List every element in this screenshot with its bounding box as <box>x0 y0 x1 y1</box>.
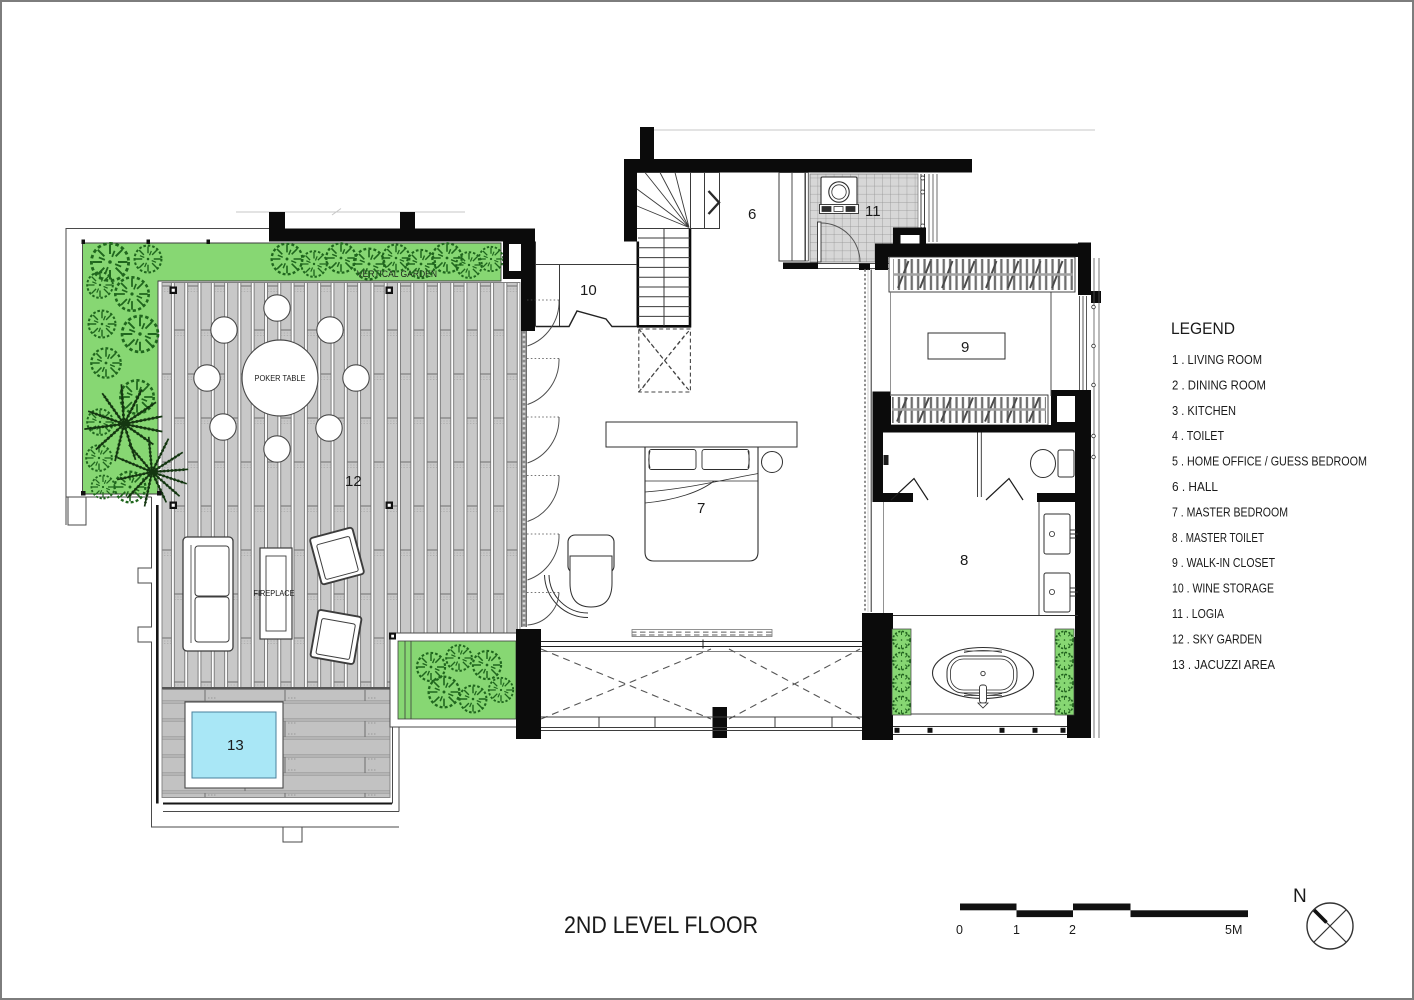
svg-text:LEGEND: LEGEND <box>1171 320 1235 338</box>
svg-text:10: 10 <box>580 282 597 299</box>
svg-text:N: N <box>1293 886 1307 907</box>
svg-text:1 . LIVING ROOM: 1 . LIVING ROOM <box>1172 352 1262 367</box>
svg-text:2 . DINING ROOM: 2 . DINING ROOM <box>1172 377 1266 392</box>
svg-text:2: 2 <box>1069 923 1076 937</box>
svg-text:8: 8 <box>960 552 968 569</box>
svg-text:7: 7 <box>697 500 705 517</box>
svg-text:2ND LEVEL FLOOR: 2ND LEVEL FLOOR <box>564 912 758 939</box>
svg-text:10 . WINE STORAGE: 10 . WINE STORAGE <box>1172 581 1274 596</box>
svg-text:9 . WALK-IN CLOSET: 9 . WALK-IN CLOSET <box>1172 555 1275 570</box>
svg-text:0: 0 <box>956 923 963 937</box>
svg-text:FIREPLACE: FIREPLACE <box>254 589 295 598</box>
svg-text:11 . LOGIA: 11 . LOGIA <box>1172 606 1224 621</box>
svg-text:12 . SKY GARDEN: 12 . SKY GARDEN <box>1172 631 1262 646</box>
svg-text:1: 1 <box>1013 923 1020 937</box>
svg-text:13 . JACUZZI AREA: 13 . JACUZZI AREA <box>1172 657 1275 672</box>
svg-text:4 . TOILET: 4 . TOILET <box>1172 428 1224 443</box>
svg-text:6 . HALL: 6 . HALL <box>1172 479 1218 494</box>
svg-text:5M: 5M <box>1225 923 1242 937</box>
svg-text:11: 11 <box>865 203 881 220</box>
svg-text:POKER TABLE: POKER TABLE <box>255 374 306 383</box>
svg-text:3 . KITCHEN: 3 . KITCHEN <box>1172 403 1236 418</box>
svg-text:6: 6 <box>748 206 756 223</box>
svg-text:5 . HOME OFFICE / GUESS BEDROO: 5 . HOME OFFICE / GUESS BEDROOM <box>1172 454 1367 469</box>
svg-text:8 . MASTER TOILET: 8 . MASTER TOILET <box>1172 530 1264 545</box>
svg-text:7 . MASTER BEDROOM: 7 . MASTER BEDROOM <box>1172 504 1288 519</box>
svg-text:9: 9 <box>961 339 969 356</box>
svg-text:12: 12 <box>345 473 362 490</box>
svg-text:13: 13 <box>227 737 244 754</box>
